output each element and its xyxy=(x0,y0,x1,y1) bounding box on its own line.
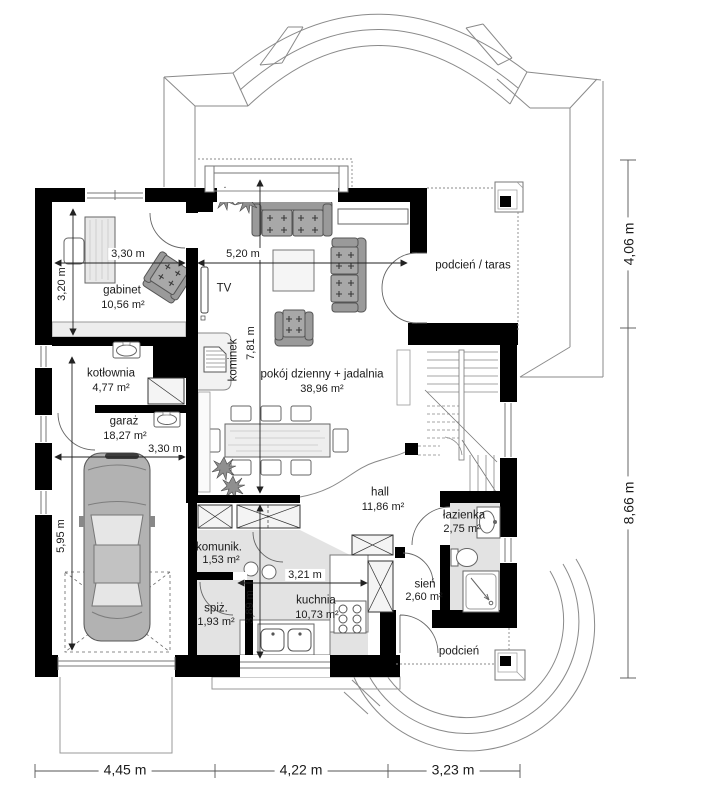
dim-right-bottom: 8,66 m xyxy=(621,477,636,530)
room-area-kitchen: 10,73 m² xyxy=(295,609,338,621)
room-area-corridor: 1,53 m² xyxy=(202,554,239,566)
wall-cabinet xyxy=(198,392,210,492)
room-label-bathroom: łazienka xyxy=(443,510,485,523)
dim-garage-width: 3,30 m xyxy=(145,443,185,455)
column-icon xyxy=(500,196,511,207)
kitchen-porch xyxy=(212,677,400,689)
room-label-kitchen: kuchnia xyxy=(296,595,336,608)
room-label-boiler-room: kotłownia xyxy=(87,368,135,381)
room-area-boiler-room: 4,77 m² xyxy=(92,382,129,394)
dim-bottom-right: 3,23 m xyxy=(427,762,480,777)
column-icon xyxy=(500,656,511,666)
room-label-terrace: podcień / taras xyxy=(435,260,510,273)
dim-kitchen-width: 3,21 m xyxy=(285,569,325,581)
tv-wall xyxy=(201,267,208,320)
car-icon xyxy=(79,453,155,641)
room-area-garage: 18,27 m² xyxy=(103,430,146,442)
dim-garage-height: 5,95 m xyxy=(55,519,67,553)
fireplace-label: kominek xyxy=(228,339,241,382)
room-label-garage: garaż xyxy=(110,416,139,429)
dim-office-height: 3,20 m xyxy=(56,267,68,301)
tv-icon xyxy=(201,267,208,313)
room-area-vestibule: 2,60 m² xyxy=(405,591,442,603)
dim-right-top: 4,06 m xyxy=(621,218,636,271)
room-label-hall: hall xyxy=(371,487,389,500)
driveway xyxy=(60,668,172,753)
room-area-living-room: 38,96 m² xyxy=(300,383,343,395)
sideboard xyxy=(338,209,408,224)
dim-bottom-mid: 4,22 m xyxy=(275,762,328,777)
dim-office-width: 3,30 m xyxy=(108,248,148,260)
dim-living-height: 7,81 m xyxy=(245,326,257,360)
fireplace-icon xyxy=(198,333,231,390)
dim-kitchen-height: 3,89 m xyxy=(244,590,256,624)
tv-label: TV xyxy=(217,283,232,296)
room-label-living-room: pokój dzienny + jadalnia xyxy=(260,369,383,382)
office-shelf xyxy=(52,322,186,337)
room-label-office: gabinet xyxy=(103,285,141,298)
door-office xyxy=(150,213,185,248)
room-label-porch: podcień xyxy=(439,646,479,659)
hall-cabinet xyxy=(397,350,410,405)
sofa-top xyxy=(252,200,332,236)
stairs xyxy=(418,350,498,495)
dim-living-width: 5,20 m xyxy=(223,248,263,260)
room-label-pantry: spiż. xyxy=(204,603,228,616)
room-area-office: 10,56 m² xyxy=(101,299,144,311)
room-area-hall: 11,86 m² xyxy=(362,501,405,513)
hall-floor-edge xyxy=(300,452,405,497)
room-label-vestibule: sień xyxy=(414,579,435,592)
room-area-bathroom: 2,75 m² xyxy=(443,523,480,535)
coffee-table xyxy=(273,250,314,291)
floor-plan: gabinet 10,56 m² kotłownia 4,77 m² garaż… xyxy=(0,0,701,800)
sofa-right xyxy=(331,238,366,312)
dining-table xyxy=(225,424,330,457)
armchair-living xyxy=(275,310,313,346)
floor-plan-drawing xyxy=(0,0,701,800)
shower-icon xyxy=(463,571,499,612)
room-label-corridor: komunik. xyxy=(196,542,242,555)
garage-basin xyxy=(154,412,180,427)
desk-chair xyxy=(64,238,84,264)
outdoor-slabs xyxy=(60,668,400,753)
dim-bottom-left: 4,45 m xyxy=(99,762,152,777)
room-area-pantry: 1,93 m² xyxy=(197,616,234,628)
utility-basin xyxy=(113,342,140,358)
round-stool xyxy=(262,565,276,579)
door-boiler-room xyxy=(58,413,95,450)
